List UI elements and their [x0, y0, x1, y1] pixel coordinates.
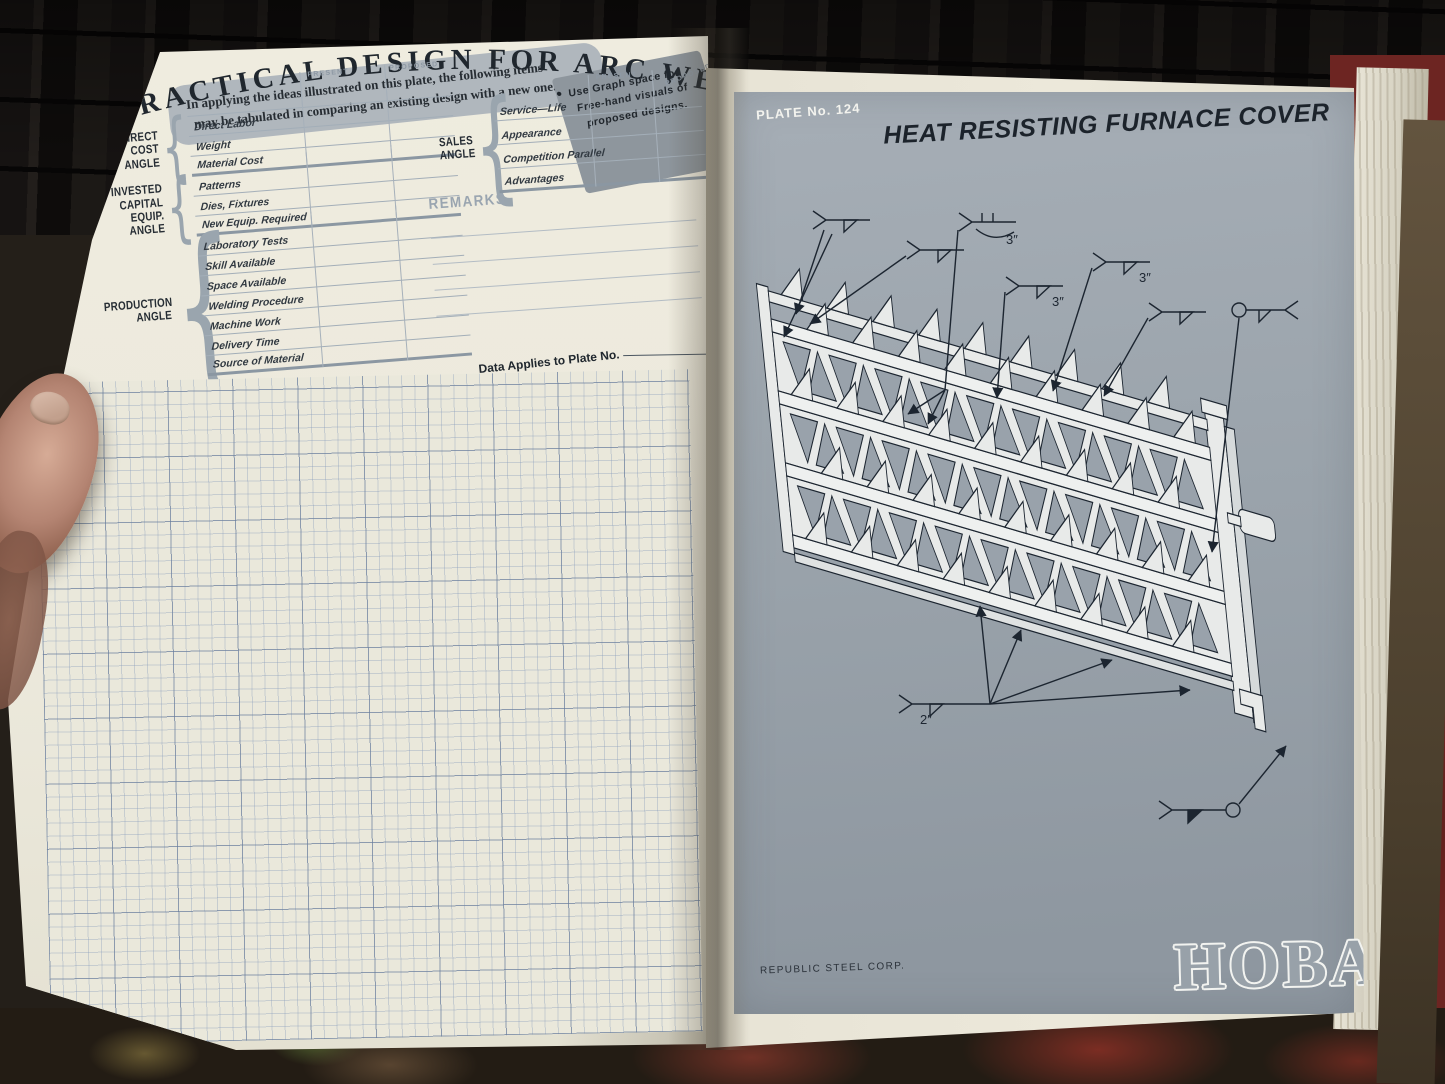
gusset-fin — [1053, 343, 1078, 381]
weld-symbol-all-around — [1232, 301, 1298, 322]
furnace-cover-drawing: 3″ 3″ 3″ 2″ — [734, 92, 1354, 1014]
gusset-fin — [870, 290, 895, 328]
weld-size-label: 3″ — [1139, 270, 1151, 285]
form-group-label: PRODUCTIONANGLE — [84, 239, 180, 385]
gusset-fin — [778, 263, 803, 301]
weld-size-label: 3″ — [1006, 232, 1018, 247]
fill-in-line — [623, 354, 709, 357]
form-group: PRODUCTIONANGLE{Laboratory TestsSkill Av… — [84, 216, 472, 385]
right-page: PLATE No. 124 HEAT RESISTING FURNACE COV… — [698, 30, 1386, 1055]
sales-angle-table: PRESENT PROPOSED SALESANGLE{Service—Life… — [428, 67, 707, 198]
photo-of-open-book: In applying the ideas illustrated on thi… — [0, 0, 1445, 1084]
plate-panel: PLATE No. 124 HEAT RESISTING FURNACE COV… — [734, 92, 1354, 1014]
form-row-label: Service—Life — [500, 101, 567, 118]
column-header-present: PRESENT — [596, 71, 638, 81]
gusset-fin — [1145, 370, 1170, 408]
form-row-label: Weight — [196, 139, 231, 154]
graph-paper — [37, 369, 703, 1045]
weld-symbol — [1149, 303, 1206, 324]
form-rows: Service—LifeAppearanceCompetition Parall… — [493, 83, 707, 193]
weld-size-label: 2″ — [920, 712, 932, 727]
weld-size-label: 3″ — [1052, 294, 1064, 309]
form-row-label: Material Cost — [197, 154, 263, 171]
form-row-label: Source of Material — [213, 352, 304, 371]
gusset-fin — [961, 316, 986, 354]
gusset-fin — [1007, 330, 1032, 368]
weld-symbol — [813, 211, 870, 232]
truss-structure — [754, 256, 1296, 741]
form-row-label: Advantages — [504, 172, 564, 188]
form-row-label: Patterns — [199, 178, 242, 193]
form-group-label: SALESANGLE — [429, 99, 478, 198]
remarks-section: REMARKS — [428, 177, 706, 317]
weld-symbol-all-around — [1159, 801, 1240, 823]
gusset-fin — [916, 303, 941, 341]
gusset-fin — [824, 276, 849, 314]
form-row-label: Appearance — [501, 126, 562, 142]
gusset-fin — [1099, 357, 1124, 395]
form-row-label: Direct Labor — [194, 117, 256, 134]
